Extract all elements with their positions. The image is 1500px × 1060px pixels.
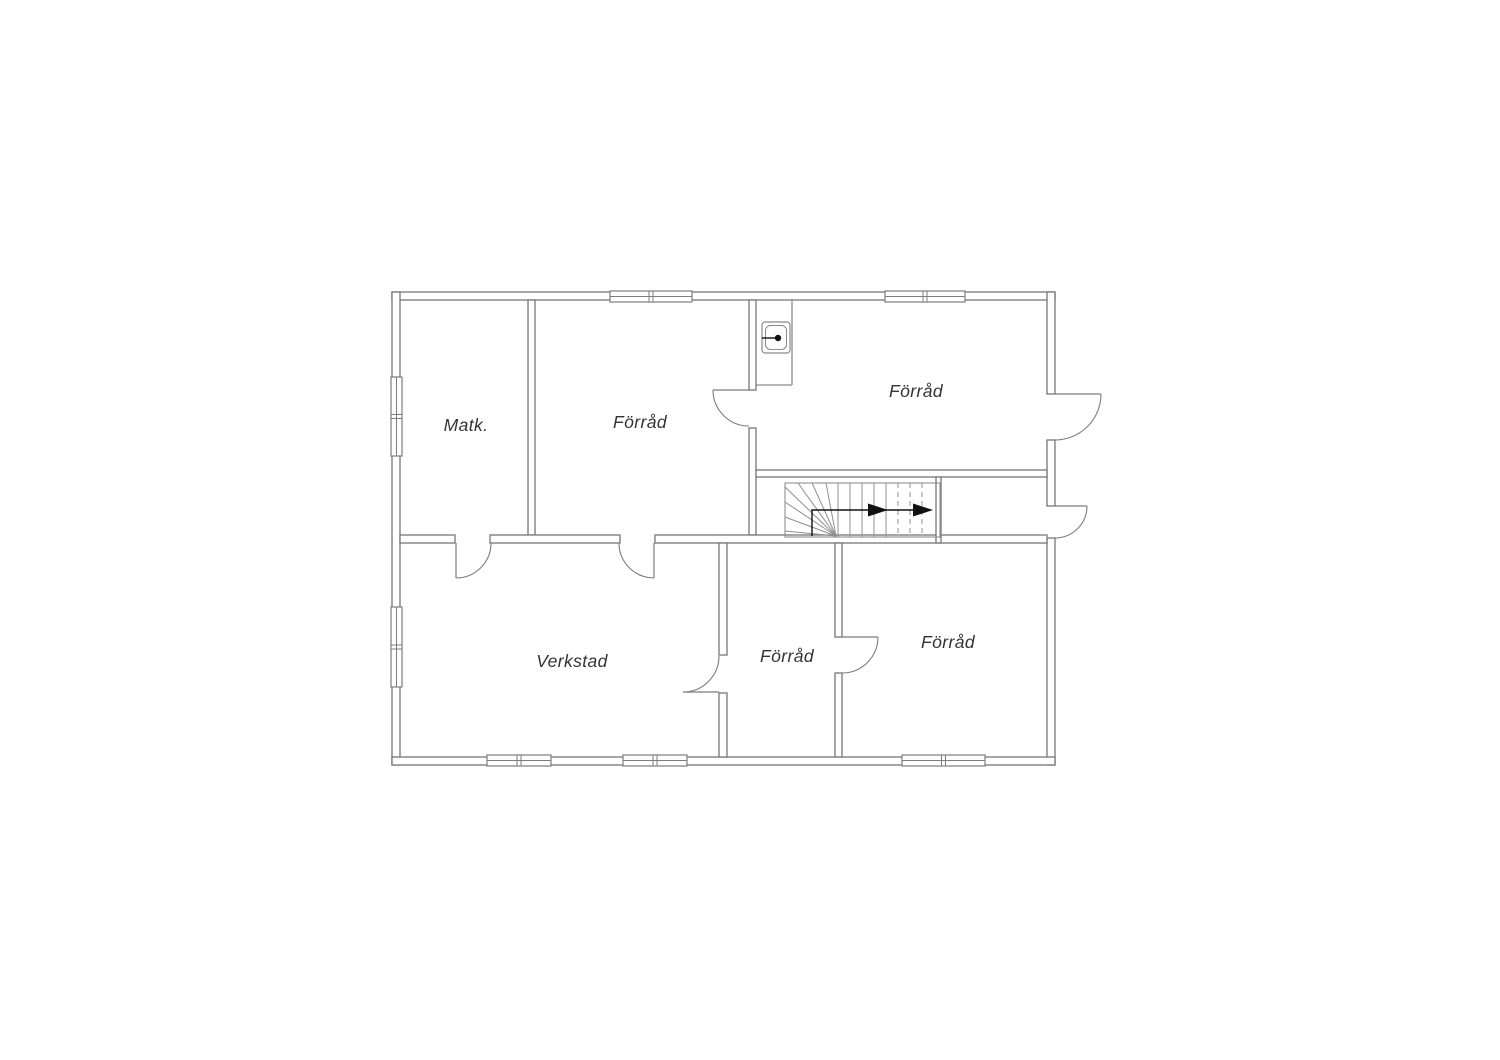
room-label-forrad-mid: Förråd [760, 646, 815, 666]
door-exterior-lower-swing [1055, 506, 1087, 538]
exterior-wall-right-upper [1047, 292, 1055, 394]
wall-forrad-forrad-lower [835, 673, 842, 757]
floor-plan-page: Matk.FörrådFörrådVerkstadFörrådFörråd [0, 0, 1500, 1060]
stairs-direction-arrow-head [868, 504, 888, 517]
room-label-forrad-bottom: Förråd [921, 632, 976, 652]
door-forrad-verkstad-swing [619, 543, 654, 578]
wall-mid-band-left [400, 535, 455, 543]
room-label-matk: Matk. [444, 415, 489, 435]
exterior-wall-right-lower [1047, 538, 1055, 765]
room-label-forrad-top: Förråd [613, 412, 668, 432]
exterior-wall-left [392, 292, 400, 765]
wall-forrad-hall-lower [749, 428, 756, 535]
door-forrad-forrad-swing [842, 637, 878, 673]
door-matk-verkstad-swing [456, 543, 491, 578]
exterior-wall-right-middle [1047, 440, 1055, 506]
wall-forrad-forrad-upper [835, 543, 842, 637]
wall-mid-band-right [655, 535, 1047, 543]
sink-faucet-dot [775, 335, 781, 341]
wall-verkstad-forrad-upper [719, 543, 727, 655]
wall-matk-forrad [528, 300, 535, 535]
stairs-direction-arrow-head [913, 504, 933, 517]
room-label-forrad-right: Förråd [889, 381, 944, 401]
wall-forrad-hall-upper [749, 300, 756, 390]
room-label-verkstad: Verkstad [536, 651, 608, 671]
door-verkstad-forrad-swing [683, 656, 719, 692]
wall-verkstad-forrad-lower [719, 693, 727, 757]
wall-mid-band-center [490, 535, 620, 543]
floor-plan: Matk.FörrådFörrådVerkstadFörrådFörråd [0, 0, 1500, 1060]
door-exterior-upper-swing [1055, 394, 1101, 440]
wall-forrad-right-bottom [756, 470, 1047, 477]
door-forrad-hall-swing [713, 390, 749, 426]
